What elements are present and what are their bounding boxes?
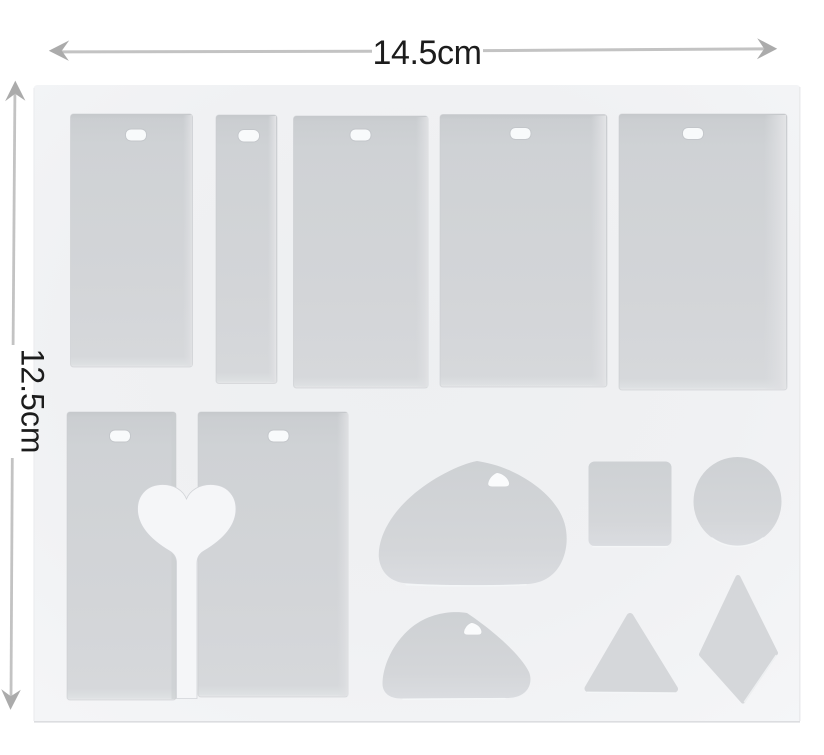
svg-text:14.5cm: 14.5cm <box>372 34 481 72</box>
svg-text:12.5cm: 12.5cm <box>15 349 51 454</box>
